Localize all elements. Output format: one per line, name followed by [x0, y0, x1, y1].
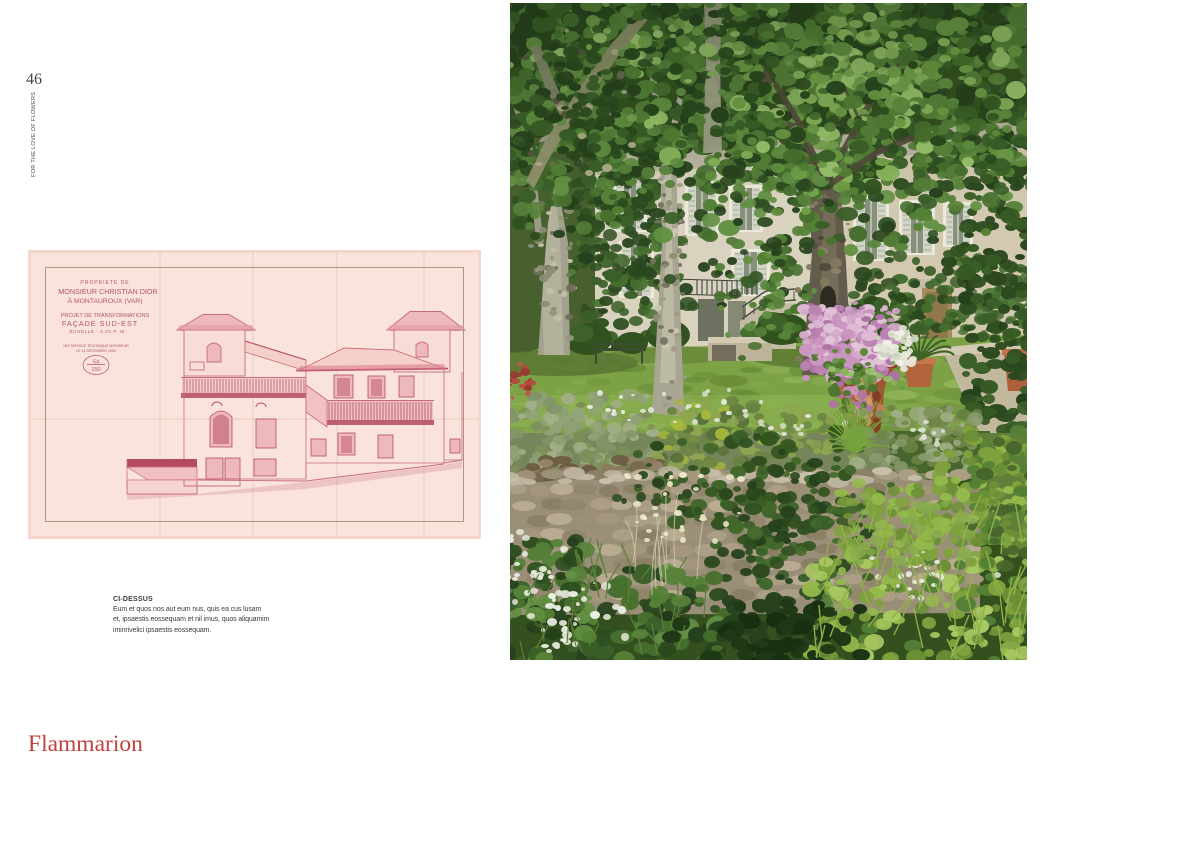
svg-text:LE 14 DÉCEMBRE 1950: LE 14 DÉCEMBRE 1950: [76, 348, 116, 353]
svg-text:150: 150: [91, 367, 100, 373]
svg-text:FAÇADE SUD-EST: FAÇADE SUD-EST: [62, 319, 138, 328]
svg-text:ÉCHELLE : 0,02 P. M.: ÉCHELLE : 0,02 P. M.: [69, 328, 126, 334]
svg-text:MONSIEUR CHRISTIAN DIOR: MONSIEUR CHRISTIAN DIOR: [58, 287, 157, 296]
svg-text:PROPRIÉTÉ DE: PROPRIÉTÉ DE: [80, 279, 129, 286]
svg-text:MIS SERVICE TECHNIQUE MONSIEUR: MIS SERVICE TECHNIQUE MONSIEUR: [63, 344, 129, 348]
svg-text:À MONTAUROUX (VAR): À MONTAUROUX (VAR): [68, 296, 143, 305]
